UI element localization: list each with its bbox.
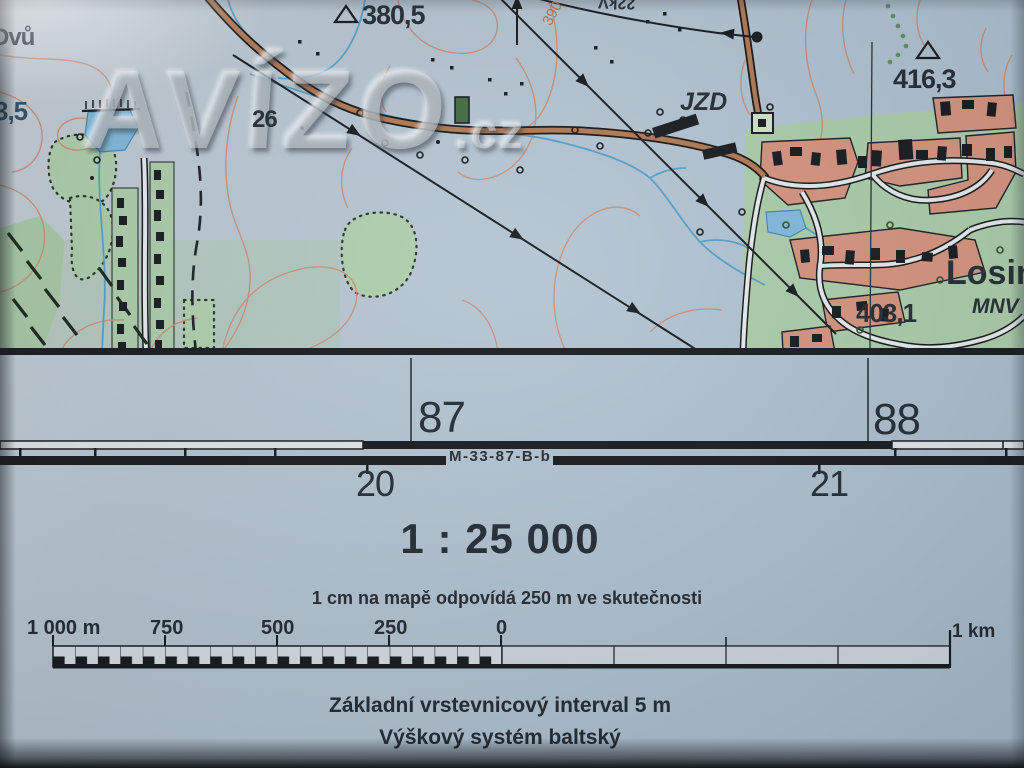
sheet-code: M-33-87-B-b — [449, 449, 551, 464]
label-trig-height-2: 416,3 — [893, 66, 956, 93]
label-authority-mnv: MNV — [972, 296, 1019, 317]
label-spot-height: 403,1 — [856, 300, 916, 326]
height-system-note: Výškový systém baltský — [379, 727, 621, 748]
scalebar-label-750: 750 — [150, 618, 183, 638]
watermark-tld: .cz — [453, 106, 527, 159]
label-powerline-voltage: 22kV — [598, 0, 636, 11]
contour-interval-note: Základní vrstevnicový interval 5 m — [329, 695, 671, 716]
label-settlement-right: Losin — [946, 256, 1024, 290]
grid-number-88: 88 — [873, 398, 920, 442]
label-road-number: 26 — [252, 108, 277, 132]
avizo-watermark: AVÍZO.cz — [80, 54, 531, 166]
map-border — [0, 348, 1024, 355]
scale-ratio: 1 : 25 000 — [400, 518, 599, 560]
scalebar-label-1000m: 1 000 m — [27, 618, 100, 638]
scalebar-label-0: 0 — [496, 618, 507, 638]
scalebar-label-250: 250 — [374, 618, 407, 638]
scale-equivalence: 1 cm na mapě odpovídá 250 m ve skutečnos… — [312, 589, 702, 607]
minute-number-20: 20 — [356, 466, 394, 502]
label-trig-height-1: 380,5 — [362, 2, 425, 29]
map-photo: { "watermark": { "name": "AVÍZO", "tld":… — [0, 0, 1024, 768]
label-farm-jzd: JZD — [680, 90, 727, 115]
minute-number-21: 21 — [810, 466, 848, 502]
label-water-value: 3,5 — [0, 98, 27, 124]
label-settlement-left: Dvů — [0, 26, 34, 50]
scalebar-label-1km: 1 km — [952, 622, 995, 641]
scalebar-label-500: 500 — [261, 618, 294, 638]
photo-wrapper: AVÍZO.cz Dvů 3,5 380,5 416,3 JZD 26 Losi… — [0, 0, 1024, 768]
grid-number-87: 87 — [418, 396, 465, 440]
